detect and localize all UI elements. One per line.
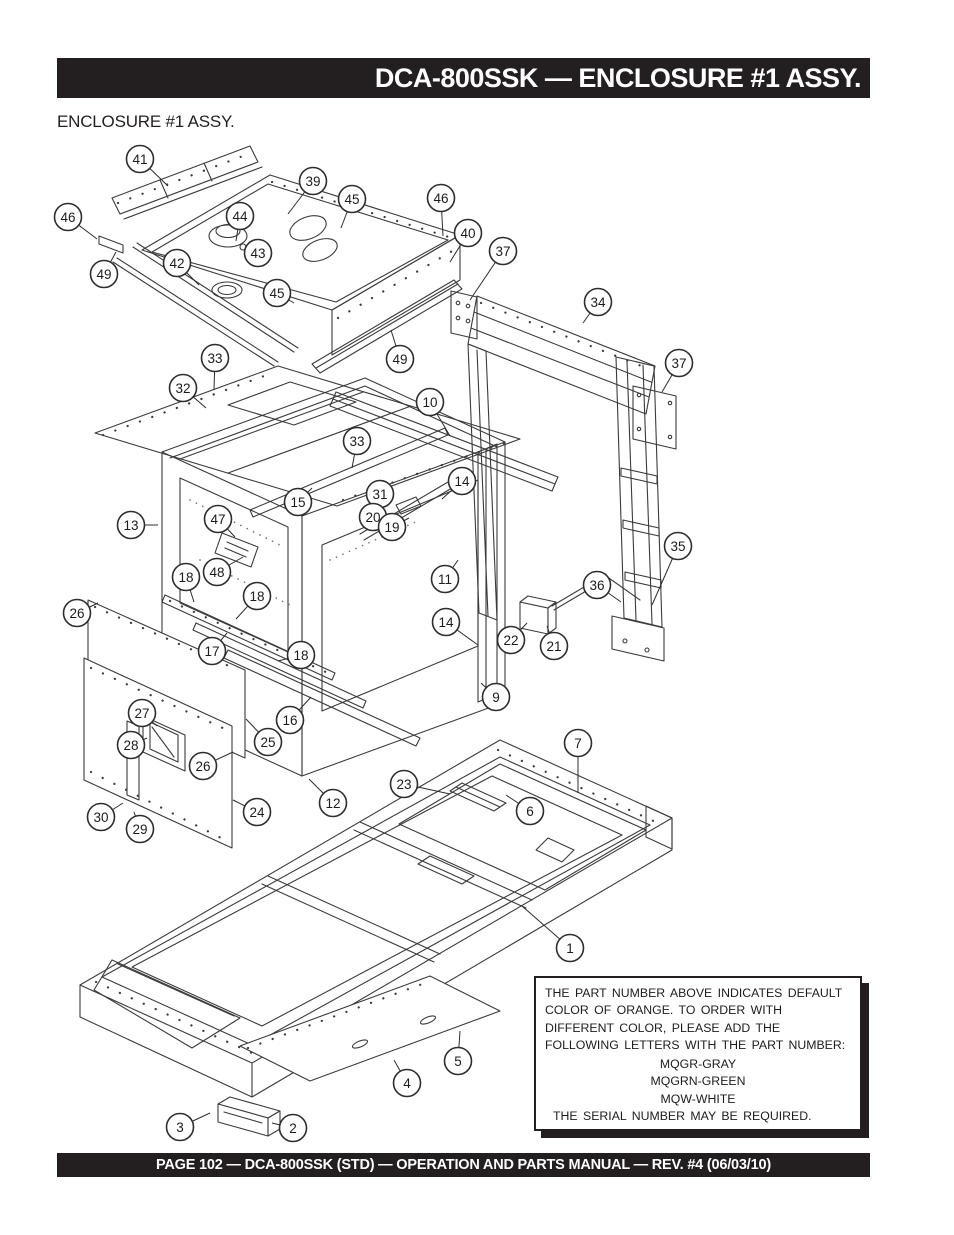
color-code-white: MQW-WHITE	[545, 1091, 851, 1108]
svg-text:11: 11	[438, 572, 452, 587]
svg-text:18: 18	[178, 570, 193, 585]
callout-37: 37	[470, 238, 517, 301]
svg-text:25: 25	[260, 735, 275, 750]
callout-18: 18	[236, 583, 271, 620]
svg-text:21: 21	[546, 639, 561, 654]
callout-18: 18	[173, 564, 200, 603]
color-note-box: THE PART NUMBER ABOVE INDICATES DEFAULT …	[534, 976, 862, 1131]
color-code-gray: MQGR-GRAY	[545, 1056, 851, 1073]
svg-text:27: 27	[134, 706, 149, 721]
svg-text:4: 4	[403, 1076, 411, 1091]
svg-text:49: 49	[392, 352, 407, 367]
svg-text:40: 40	[460, 226, 475, 241]
callout-9: 9	[481, 683, 510, 711]
callout-41: 41	[127, 146, 169, 187]
callout-46: 46	[428, 185, 455, 237]
callout-24: 24	[233, 799, 271, 826]
svg-text:24: 24	[249, 805, 265, 820]
callout-34: 34	[583, 289, 612, 324]
callout-3: 3	[167, 1113, 211, 1141]
svg-text:36: 36	[589, 578, 604, 593]
svg-text:5: 5	[454, 1054, 462, 1069]
hinge-bracket-part	[99, 236, 123, 253]
svg-text:12: 12	[325, 796, 340, 811]
svg-text:14: 14	[454, 474, 470, 489]
svg-text:45: 45	[269, 286, 284, 301]
svg-text:16: 16	[282, 713, 297, 728]
callout-45: 45	[264, 280, 295, 307]
callout-46: 46	[55, 204, 98, 240]
svg-text:34: 34	[590, 295, 606, 310]
svg-text:46: 46	[60, 210, 75, 225]
callout-14: 14	[442, 468, 476, 500]
callout-18: 18	[278, 642, 315, 669]
callout-25: 25	[246, 719, 282, 756]
callout-1: 1	[522, 906, 584, 962]
callout-29: 29	[127, 812, 154, 843]
callout-17: 17	[199, 633, 228, 665]
svg-text:33: 33	[207, 351, 222, 366]
callout-30: 30	[88, 803, 124, 831]
svg-text:44: 44	[232, 209, 248, 224]
svg-text:15: 15	[290, 495, 305, 510]
svg-text:28: 28	[123, 738, 138, 753]
svg-text:1: 1	[566, 941, 574, 956]
svg-text:37: 37	[495, 244, 510, 259]
callout-32: 32	[170, 375, 207, 409]
svg-text:6: 6	[526, 804, 534, 819]
svg-text:45: 45	[344, 192, 359, 207]
callout-16: 16	[277, 697, 312, 734]
svg-text:26: 26	[195, 759, 210, 774]
serial-note-text: THE SERIAL NUMBER MAY BE REQUIRED.	[545, 1108, 851, 1125]
callout-40: 40	[450, 220, 482, 263]
manual-page: DCA-800SSK — ENCLOSURE #1 ASSY. ENCLOSUR…	[0, 0, 954, 1235]
svg-text:22: 22	[503, 633, 518, 648]
callout-33: 33	[202, 345, 229, 391]
svg-text:32: 32	[175, 381, 190, 396]
svg-text:13: 13	[123, 518, 138, 533]
callout-5: 5	[445, 1031, 472, 1075]
svg-text:17: 17	[204, 644, 219, 659]
svg-text:48: 48	[209, 565, 224, 580]
svg-text:14: 14	[438, 615, 454, 630]
svg-text:2: 2	[289, 1121, 297, 1136]
callout-35: 35	[652, 533, 692, 606]
callout-47: 47	[205, 506, 236, 538]
rear-door-frame-part	[468, 296, 676, 661]
color-code-list: MQGR-GRAY MQGRN-GREEN MQW-WHITE	[545, 1056, 851, 1108]
svg-text:23: 23	[396, 777, 411, 792]
callout-4: 4	[394, 1060, 421, 1097]
svg-text:46: 46	[433, 191, 448, 206]
callout-22: 22	[498, 623, 528, 654]
svg-text:39: 39	[305, 174, 320, 189]
svg-text:47: 47	[210, 512, 225, 527]
callout-6: 6	[506, 795, 544, 825]
svg-text:33: 33	[349, 434, 364, 449]
svg-text:7: 7	[574, 736, 582, 751]
svg-text:10: 10	[422, 395, 437, 410]
page-footer-bar: PAGE 102 — DCA-800SSK (STD) — OPERATION …	[57, 1153, 870, 1177]
channel-bracket-part	[218, 1097, 280, 1136]
svg-text:35: 35	[670, 539, 685, 554]
callout-14: 14	[433, 609, 479, 646]
callout-43: 43	[245, 240, 272, 267]
svg-text:18: 18	[293, 648, 308, 663]
callout-49: 49	[91, 252, 118, 288]
callout-27: 27	[129, 700, 158, 727]
svg-text:29: 29	[132, 822, 147, 837]
callout-15: 15	[285, 488, 313, 516]
color-code-green: MQGRN-GREEN	[545, 1073, 851, 1090]
svg-text:19: 19	[384, 520, 399, 535]
callout-45: 45	[339, 186, 366, 229]
note-body-text: THE PART NUMBER ABOVE INDICATES DEFAULT …	[545, 985, 851, 1055]
callout-36: 36	[584, 572, 622, 603]
callout-11: 11	[432, 560, 459, 593]
callout-44: 44	[227, 203, 254, 242]
svg-text:18: 18	[249, 589, 264, 604]
footer-text: PAGE 102 — DCA-800SSK (STD) — OPERATION …	[156, 1157, 771, 1173]
callout-42: 42	[164, 250, 200, 286]
svg-text:37: 37	[671, 356, 686, 371]
svg-text:49: 49	[96, 267, 111, 282]
callout-19: 19	[379, 514, 410, 541]
callout-39: 39	[288, 168, 327, 215]
svg-text:30: 30	[93, 810, 108, 825]
callout-7: 7	[565, 730, 592, 794]
svg-text:43: 43	[250, 246, 265, 261]
callout-12: 12	[309, 779, 347, 817]
svg-text:42: 42	[169, 256, 184, 271]
callout-49: 49	[387, 330, 414, 373]
svg-text:20: 20	[365, 510, 380, 525]
callout-37: 37	[662, 350, 693, 393]
svg-text:31: 31	[372, 487, 387, 502]
svg-text:9: 9	[492, 690, 500, 705]
svg-text:41: 41	[132, 152, 147, 167]
latch-part	[520, 574, 640, 634]
svg-text:26: 26	[69, 606, 84, 621]
svg-text:3: 3	[176, 1120, 184, 1135]
callout-33: 33	[344, 428, 371, 469]
callout-13: 13	[118, 512, 159, 539]
filler-cap-part	[209, 225, 247, 299]
